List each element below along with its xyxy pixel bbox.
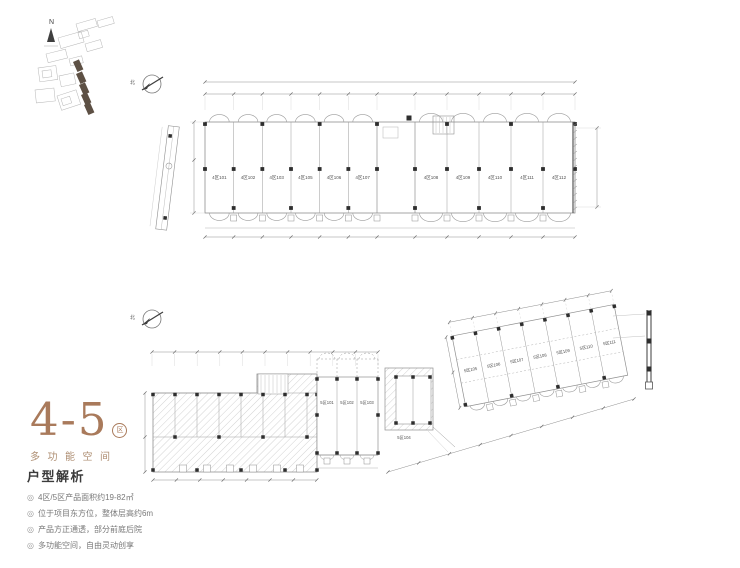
brochure-page: 4区1014区1024区1034区1054区1064区1074区1084区109… bbox=[0, 0, 740, 568]
unit-label: 4区110 bbox=[488, 175, 503, 180]
unit-label: 4区106 bbox=[327, 175, 342, 180]
unit-label: 5区101 bbox=[320, 400, 334, 405]
analysis-bullet-text: 位于项目东方位，整体层高约6m bbox=[38, 508, 153, 519]
unit-label: 4区101 bbox=[212, 175, 227, 180]
zone-badge: 区 bbox=[112, 423, 127, 438]
analysis-bullet-text: 4区/5区产品面积约19-82㎡ bbox=[38, 492, 134, 503]
analysis-bullet: ◎多功能空间，自由灵动创享 bbox=[27, 540, 237, 551]
analysis-bullet-text: 多功能空间，自由灵动创享 bbox=[38, 540, 134, 551]
bullet-icon: ◎ bbox=[27, 541, 34, 550]
unit-label: 4区109 bbox=[456, 175, 471, 180]
bullet-icon: ◎ bbox=[27, 509, 34, 518]
analysis-heading: 户型解析 bbox=[27, 466, 237, 485]
side-sliver-building bbox=[150, 125, 180, 230]
unit-label: 4区112 bbox=[552, 175, 567, 180]
unit-label: 4区105 bbox=[298, 175, 313, 180]
bullet-icon: ◎ bbox=[27, 525, 34, 534]
floor-plan-top: 4区1014区1024区1034区1054区1064区1074区1084区109… bbox=[142, 75, 601, 239]
north-label: N bbox=[49, 19, 54, 26]
zone-number: 4-5 区 bbox=[30, 397, 127, 442]
analysis-bullet: ◎4区/5区产品面积约19-82㎡ bbox=[27, 492, 237, 503]
unit-label: 4区108 bbox=[424, 175, 439, 180]
page: { "site_plan": { "north_label": "N" }, "… bbox=[0, 0, 740, 568]
unit-label: 5区104 bbox=[397, 435, 411, 440]
unit-label: 5区102 bbox=[340, 400, 354, 405]
site-plan-map bbox=[35, 17, 114, 115]
compass-north-label-middle: 北 bbox=[130, 316, 135, 321]
analysis-bullet-text: 产品方正通透，部分前庭后院 bbox=[38, 524, 142, 535]
unit-label: 4区107 bbox=[355, 175, 370, 180]
analysis-bullets: ◎4区/5区产品面积约19-82㎡ ◎位于项目东方位，整体层高约6m ◎产品方正… bbox=[27, 492, 237, 551]
zone-subtitle: 多功能空间 bbox=[30, 448, 127, 463]
unit-label: 5区103 bbox=[360, 400, 374, 405]
unit-label: 4区103 bbox=[269, 175, 284, 180]
angled-building: 5区1055区1065区1075区1085区1095区1105区111 bbox=[442, 289, 631, 416]
unit-label: 4区111 bbox=[520, 175, 534, 180]
floor-plan-middle: 5区1015区1025区1035区1045区1055区1065区1075区108… bbox=[142, 289, 653, 482]
analysis-bullet: ◎产品方正通透，部分前庭后院 bbox=[27, 524, 237, 535]
unit-label: 4区102 bbox=[241, 175, 256, 180]
bullet-icon: ◎ bbox=[27, 493, 34, 502]
title-block: 4-5 区 多功能空间 bbox=[30, 397, 127, 463]
analysis-section: 户型解析 ◎4区/5区产品面积约19-82㎡ ◎位于项目东方位，整体层高约6m … bbox=[27, 466, 237, 556]
analysis-bullet: ◎位于项目东方位，整体层高约6m bbox=[27, 508, 237, 519]
compass-north-label-top: 北 bbox=[130, 81, 135, 86]
zone-number-text: 4-5 bbox=[30, 397, 108, 442]
